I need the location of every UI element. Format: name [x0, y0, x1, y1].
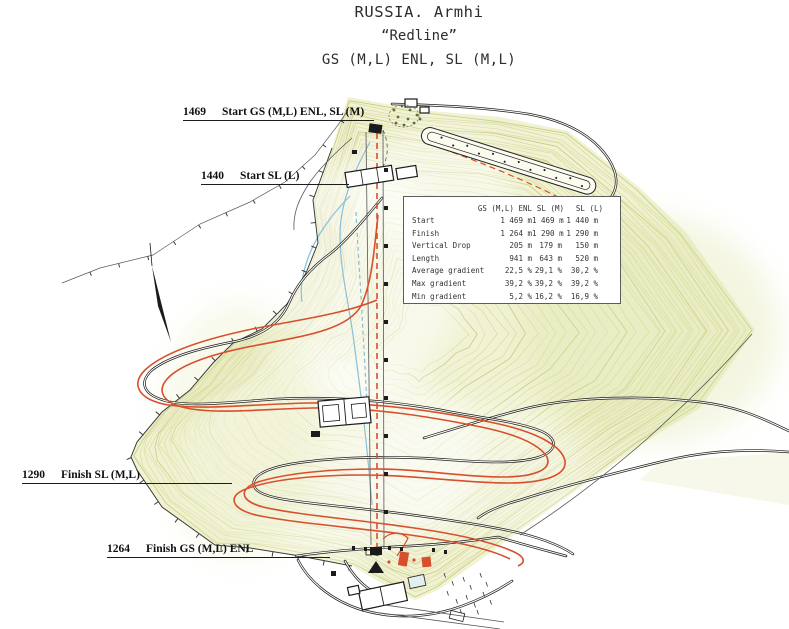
- finish-building-annex: [347, 585, 359, 595]
- title-course-name: “Redline”: [249, 28, 589, 44]
- elevation-value: 1290: [22, 469, 45, 481]
- row-label: Length: [412, 253, 476, 266]
- table-row: Max gradient39,2 %39,2 %39,2 %: [412, 278, 620, 291]
- column-header: SL (L): [567, 202, 608, 215]
- cell-value: 39,2 %: [476, 278, 532, 291]
- cell-value: 150 m: [562, 240, 598, 253]
- table-row: Length941 m643 m520 m: [412, 253, 620, 266]
- elevation-label-finish-sl: 1290 Finish SL (M,L): [22, 469, 232, 484]
- elevation-text: Start GS (M,L) ENL, SL (M): [222, 106, 364, 118]
- bottom-track-2: [373, 612, 500, 629]
- table-row: GS (M,L) ENLSL (M)SL (L): [412, 202, 620, 215]
- elevation-text: Finish SL (M,L): [61, 469, 140, 481]
- elevation-label-start-sl: 1440 Start SL (L): [201, 170, 349, 185]
- column-header: SL (M): [534, 202, 567, 215]
- row-label: Average gradient: [412, 265, 476, 278]
- elevation-text: Start SL (L): [240, 170, 299, 182]
- cell-value: 22,5 %: [476, 265, 532, 278]
- cell-value: 39,2 %: [562, 278, 598, 291]
- start-hut-2: [420, 107, 429, 113]
- cell-value: 941 m: [476, 253, 532, 266]
- elevation-value: 1469: [183, 106, 206, 118]
- table-row: Average gradient22,5 %29,1 %30,2 %: [412, 265, 620, 278]
- cell-value: 16,2 %: [532, 291, 562, 304]
- row-label: Start: [412, 215, 476, 228]
- cell-value: 205 m: [476, 240, 532, 253]
- cell-value: 520 m: [562, 253, 598, 266]
- map-title: RUSSIA. Armhi “Redline” GS (M,L) ENL, SL…: [249, 3, 589, 68]
- column-header: GS (M,L) ENL: [476, 202, 534, 215]
- elevation-label-start-gs: 1469 Start GS (M,L) ENL, SL (M): [183, 106, 374, 121]
- cell-value: 1 440 m: [562, 215, 598, 228]
- midslope-buildings: [318, 397, 371, 427]
- title-disciplines: GS (M,L) ENL, SL (M,L): [249, 52, 589, 68]
- elevation-label-finish-gs: 1264 Finish GS (M,L) ENL: [107, 543, 330, 558]
- lift-top-station: [368, 123, 382, 134]
- topographic-map: [0, 0, 789, 629]
- cell-value: 1 290 m: [532, 228, 562, 241]
- table-row: Finish1 264 m1 290 m1 290 m: [412, 228, 620, 241]
- cell-value: 5,2 %: [476, 291, 532, 304]
- stats-table: GS (M,L) ENLSL (M)SL (L)Start1 469 m1 46…: [403, 196, 621, 304]
- table-row: Start1 469 m1 469 m1 440 m: [412, 215, 620, 228]
- cell-value: 16,9 %: [562, 291, 598, 304]
- north-arrow-icon: [150, 243, 171, 342]
- cell-value: 1 469 m: [532, 215, 562, 228]
- table-corner: [412, 202, 476, 215]
- title-region: RUSSIA. Armhi: [249, 3, 589, 21]
- small-structure: [352, 150, 357, 154]
- elevation-value: 1440: [201, 170, 224, 182]
- cell-value: 179 m: [532, 240, 562, 253]
- cell-value: 29,1 %: [532, 265, 562, 278]
- cell-value: 1 290 m: [562, 228, 598, 241]
- table-row: Vertical Drop205 m179 m150 m: [412, 240, 620, 253]
- course-map-page: RUSSIA. Armhi “Redline” GS (M,L) ENL, SL…: [0, 0, 789, 629]
- cell-value: 39,2 %: [532, 278, 562, 291]
- cell-value: 30,2 %: [562, 265, 598, 278]
- row-label: Max gradient: [412, 278, 476, 291]
- midslope-shed: [311, 431, 320, 437]
- bottom-track-1: [378, 604, 504, 622]
- row-label: Vertical Drop: [412, 240, 476, 253]
- start-hut-1: [405, 99, 417, 107]
- cell-value: 1 264 m: [476, 228, 532, 241]
- elevation-value: 1264: [107, 543, 130, 555]
- row-label: Min gradient: [412, 291, 476, 304]
- cell-value: 1 469 m: [476, 215, 532, 228]
- finish-marker-red: [421, 557, 431, 568]
- cell-value: 643 m: [532, 253, 562, 266]
- table-row: Min gradient5,2 %16,2 %16,9 %: [412, 291, 620, 304]
- row-label: Finish: [412, 228, 476, 241]
- elevation-text: Finish GS (M,L) ENL: [146, 543, 253, 555]
